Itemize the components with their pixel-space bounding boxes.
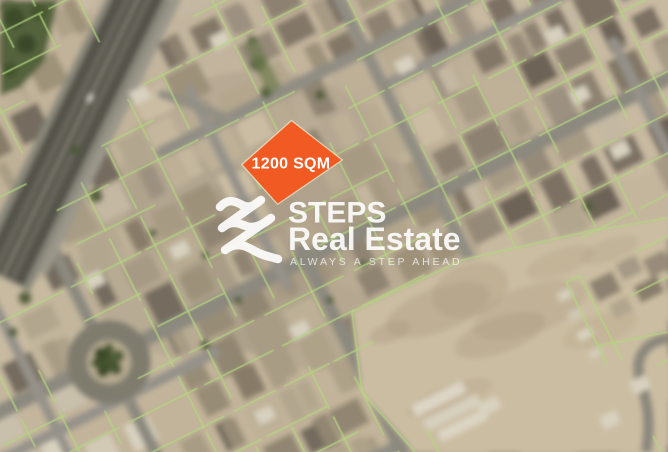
svg-text:1200 SQM: 1200 SQM [252,156,331,173]
svg-text:ALWAYS A STEP AHEAD: ALWAYS A STEP AHEAD [290,256,462,268]
svg-text:Real Estate: Real Estate [288,221,461,257]
